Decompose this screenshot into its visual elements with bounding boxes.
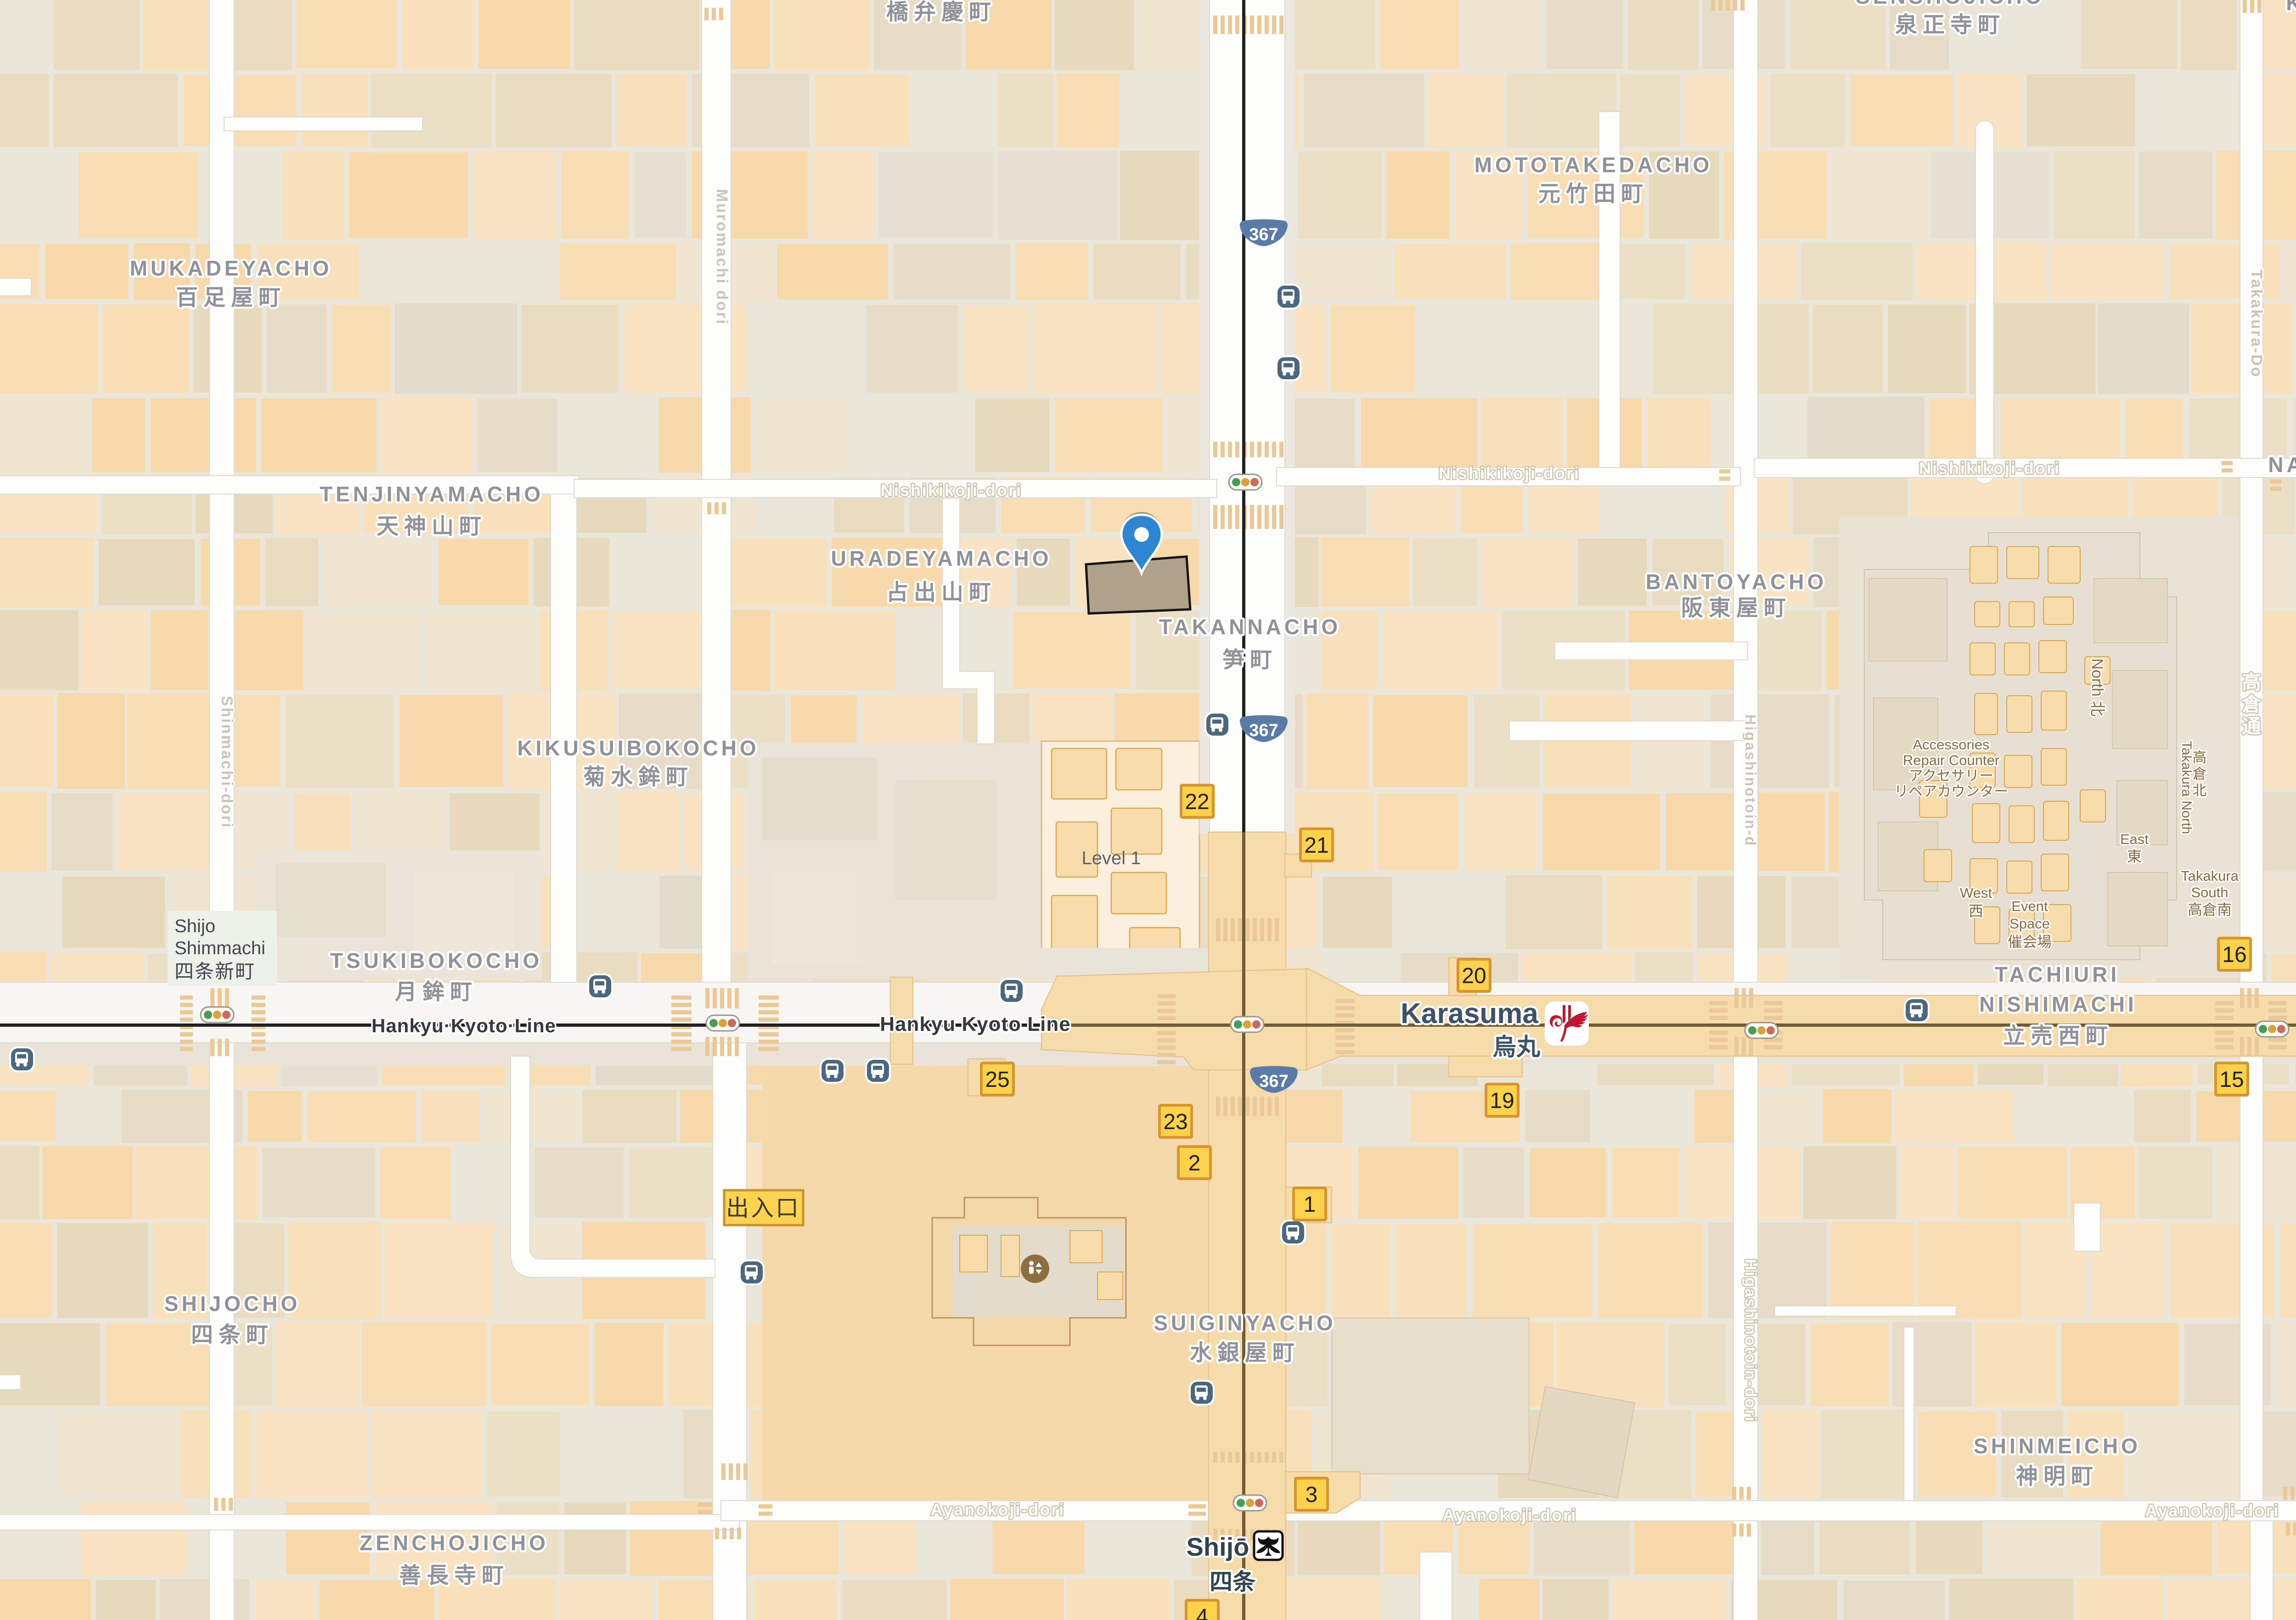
- svg-text:善長寺町: 善長寺町: [399, 1564, 509, 1588]
- svg-text:天神山町: 天神山町: [377, 514, 487, 539]
- svg-text:四条町: 四条町: [191, 1323, 274, 1347]
- svg-text:出入口: 出入口: [726, 1195, 800, 1221]
- svg-text:Shinmachi-dori: Shinmachi-dori: [218, 696, 236, 828]
- svg-text:Takakura: Takakura: [2181, 868, 2239, 884]
- svg-text:東: 東: [2127, 848, 2142, 865]
- svg-text:Space: Space: [2009, 916, 2050, 932]
- svg-text:月鉾町: 月鉾町: [395, 980, 478, 1004]
- svg-text:Level 1: Level 1: [1082, 848, 1141, 868]
- svg-text:South: South: [2191, 884, 2228, 900]
- svg-text:Nishikikoji-dori: Nishikikoji-dori: [881, 481, 1022, 500]
- svg-text:25: 25: [985, 1068, 1009, 1092]
- svg-text:NISHIMACHI: NISHIMACHI: [1979, 992, 2137, 1016]
- svg-text:高倉南: 高倉南: [2188, 901, 2232, 918]
- svg-text:Higashinotoin-dori: Higashinotoin-dori: [1742, 1259, 1759, 1423]
- svg-text:占出山町: 占出山町: [886, 580, 996, 605]
- svg-text:Shijō: Shijō: [1187, 1532, 1249, 1561]
- svg-text:Ayanokoji-dori: Ayanokoji-dori: [931, 1500, 1065, 1519]
- svg-text:水銀屋町: 水銀屋町: [1190, 1341, 1300, 1365]
- svg-text:Shijo: Shijo: [174, 916, 215, 936]
- svg-text:阪東屋町: 阪東屋町: [1681, 596, 1791, 620]
- svg-text:Nishikikoji-dori: Nishikikoji-dori: [1919, 459, 2060, 478]
- svg-text:烏丸: 烏丸: [1492, 1034, 1540, 1061]
- svg-text:MUKADEYACHO: MUKADEYACHO: [130, 256, 332, 280]
- svg-text:立売西町: 立売西町: [2003, 1024, 2113, 1048]
- svg-text:Muromachi dori: Muromachi dori: [713, 189, 731, 325]
- svg-text:20: 20: [1462, 964, 1486, 988]
- svg-text:16: 16: [2222, 943, 2246, 967]
- svg-text:2: 2: [1188, 1151, 1201, 1176]
- svg-text:SHINMEICHO: SHINMEICHO: [1974, 1434, 2141, 1458]
- svg-text:BANTOYACHO: BANTOYACHO: [1646, 570, 1827, 594]
- svg-text:NAKAUOY: NAKAUOY: [2268, 453, 2296, 477]
- svg-text:Takakura-Do: Takakura-Do: [2248, 270, 2265, 378]
- svg-text:KIKUSUIBOKOCHO: KIKUSUIBOKOCHO: [517, 736, 759, 760]
- svg-text:泉正寺町: 泉正寺町: [1895, 13, 2005, 37]
- svg-text:East: East: [2120, 831, 2149, 847]
- svg-text:North 北: North 北: [2088, 658, 2106, 717]
- svg-text:1: 1: [1304, 1192, 1316, 1217]
- svg-text:橋弁慶町: 橋弁慶町: [886, 0, 996, 24]
- svg-text:TENJINYAMACHO: TENJINYAMACHO: [320, 482, 544, 506]
- svg-text:367: 367: [1249, 225, 1278, 244]
- svg-text:ZENCHOJICHO: ZENCHOJICHO: [360, 1531, 549, 1555]
- svg-text:元竹田町: 元竹田町: [1538, 182, 1649, 206]
- svg-text:Ayanokoji-dori: Ayanokoji-dori: [1443, 1506, 1577, 1524]
- svg-text:四条: 四条: [1210, 1569, 1255, 1595]
- svg-text:四条新町: 四条新町: [174, 961, 255, 982]
- svg-text:Takakura North: Takakura North: [2179, 741, 2194, 834]
- svg-text:367: 367: [1259, 1072, 1288, 1091]
- svg-text:SHIJOCHO: SHIJOCHO: [164, 1292, 300, 1316]
- svg-text:TAKANNACHO: TAKANNACHO: [1159, 615, 1341, 639]
- svg-text:KARIGA: KARIGA: [2286, 0, 2296, 15]
- svg-text:15: 15: [2219, 1068, 2244, 1092]
- svg-text:23: 23: [1163, 1110, 1187, 1134]
- svg-text:22: 22: [1185, 790, 1209, 814]
- svg-text:Karasuma: Karasuma: [1401, 998, 1538, 1029]
- svg-text:4: 4: [1196, 1605, 1209, 1620]
- svg-text:URADEYAMACHO: URADEYAMACHO: [831, 546, 1052, 570]
- svg-text:Higashinotoin-d: Higashinotoin-d: [1742, 714, 1759, 847]
- svg-text:TSUKIBOKOCHO: TSUKIBOKOCHO: [330, 949, 542, 973]
- svg-text:3: 3: [1306, 1483, 1318, 1507]
- svg-text:West: West: [1960, 885, 1992, 901]
- svg-text:TACHIURI: TACHIURI: [1995, 962, 2120, 986]
- svg-text:Nishikikoji-dori: Nishikikoji-dori: [1439, 464, 1580, 483]
- svg-text:SENSHOJICHO: SENSHOJICHO: [1856, 0, 2045, 8]
- svg-text:367: 367: [1249, 721, 1278, 740]
- svg-text:MOTOTAKEDACHO: MOTOTAKEDACHO: [1474, 153, 1713, 177]
- svg-text:SUIGINYACHO: SUIGINYACHO: [1154, 1311, 1336, 1335]
- svg-text:高倉通: 高倉通: [2241, 671, 2262, 737]
- svg-text:Ayanokoji-dori: Ayanokoji-dori: [2145, 1501, 2280, 1520]
- svg-text:百足屋町: 百足屋町: [176, 286, 286, 310]
- svg-text:Hankyu Kyoto Line: Hankyu Kyoto Line: [880, 1013, 1071, 1035]
- svg-text:19: 19: [1490, 1089, 1514, 1113]
- svg-text:Repair Counter: Repair Counter: [1903, 752, 1999, 768]
- svg-text:Hankyu·Kyoto·Line: Hankyu·Kyoto·Line: [371, 1015, 556, 1036]
- svg-text:催会場: 催会場: [2008, 934, 2052, 950]
- svg-text:笋町: 笋町: [1222, 648, 1277, 672]
- svg-text:リペアカウンター: リペアカウンター: [1894, 783, 2008, 799]
- svg-text:Event: Event: [2011, 898, 2048, 914]
- svg-text:高倉北: 高倉北: [2193, 749, 2207, 799]
- svg-text:Shimmachi: Shimmachi: [174, 938, 265, 958]
- svg-text:菊水鉾町: 菊水鉾町: [583, 765, 693, 789]
- svg-text:Accessories: Accessories: [1913, 737, 1989, 753]
- svg-text:アクセサリー: アクセサリー: [1909, 768, 1993, 784]
- svg-text:西: 西: [1969, 903, 1983, 919]
- svg-text:神明町: 神明町: [2016, 1464, 2099, 1489]
- svg-text:21: 21: [1304, 833, 1328, 858]
